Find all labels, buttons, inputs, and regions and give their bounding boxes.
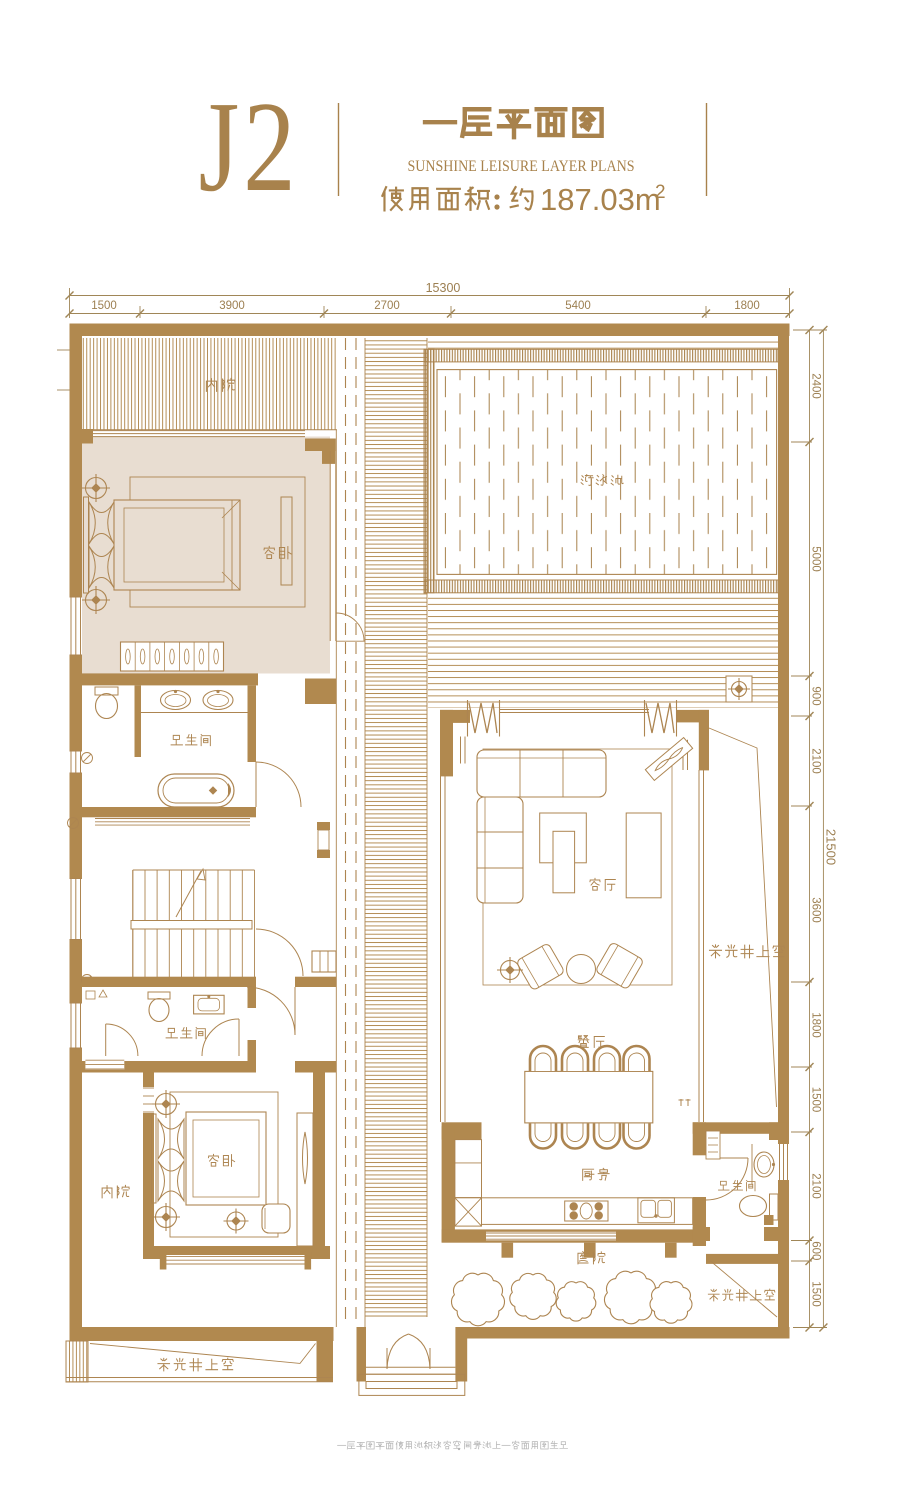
svg-text:187.03m: 187.03m [540, 182, 661, 217]
svg-text:2100: 2100 [810, 748, 822, 774]
svg-text:1800: 1800 [734, 300, 760, 312]
svg-text:600: 600 [810, 1241, 822, 1260]
svg-text:1800: 1800 [810, 1012, 822, 1038]
svg-text:J2: J2 [199, 76, 300, 219]
svg-text:SUNSHINE LEISURE LAYER PLANS: SUNSHINE LEISURE LAYER PLANS [408, 158, 635, 175]
svg-text:5400: 5400 [565, 300, 591, 312]
svg-text:2: 2 [655, 182, 666, 203]
svg-text:5000: 5000 [810, 546, 822, 572]
svg-text:1500: 1500 [810, 1281, 822, 1307]
svg-text:1500: 1500 [810, 1087, 822, 1113]
svg-text:2100: 2100 [810, 1173, 822, 1199]
svg-text:900: 900 [810, 686, 822, 705]
svg-text:2700: 2700 [374, 300, 400, 312]
svg-text:21500: 21500 [824, 829, 839, 865]
svg-text:3600: 3600 [810, 897, 822, 923]
svg-text:2400: 2400 [810, 373, 822, 399]
svg-text:3900: 3900 [219, 300, 245, 312]
svg-text:15300: 15300 [426, 281, 461, 295]
svg-text:1500: 1500 [91, 300, 117, 312]
